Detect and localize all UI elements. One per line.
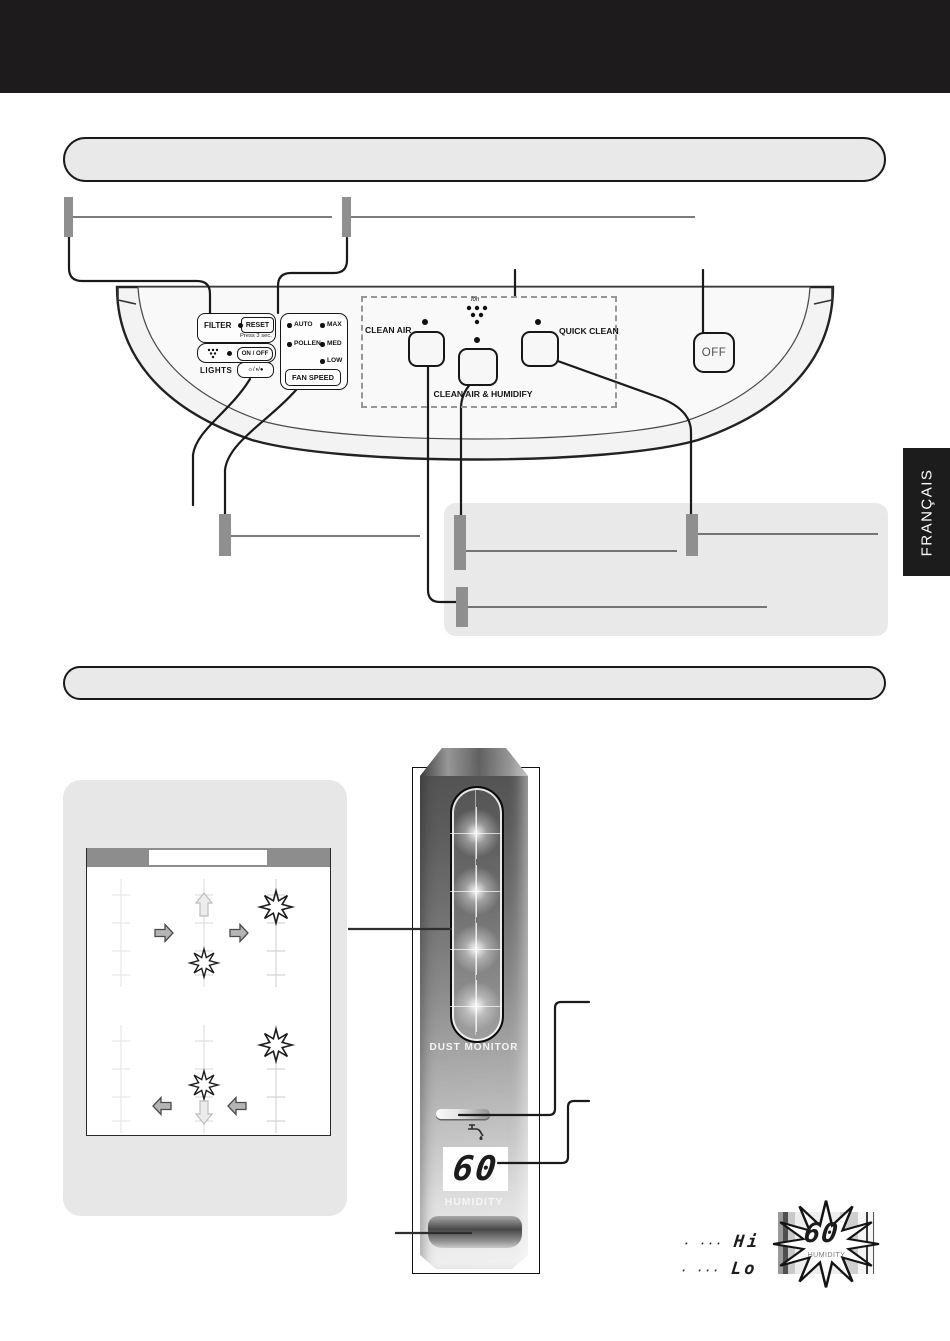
lights-label: LIGHTS <box>200 366 232 375</box>
quick-clean-button <box>521 331 559 367</box>
ion-icon <box>464 304 490 334</box>
reset-button: RESET <box>241 317 274 333</box>
off-button-label: OFF <box>702 347 727 359</box>
water-tap-icon <box>464 1120 488 1146</box>
ion-icon-label: Ion <box>471 297 479 303</box>
marker-filter <box>64 197 73 237</box>
flashing-display-thumbnail: 60 HUMIDITY <box>778 1212 875 1274</box>
ion-onoff-button: ON / OFF <box>237 347 273 361</box>
water-supply-indicator <box>436 1109 490 1119</box>
ion-onoff-label: ON / OFF <box>242 350 269 357</box>
front-panel-bottom-band <box>428 1216 522 1248</box>
leader-fan-button <box>225 390 296 514</box>
language-tab: FRANÇAIS <box>903 448 950 576</box>
dust-monitor-label: DUST MONITOR <box>420 1042 528 1053</box>
fan-indicator-med: MED <box>327 340 342 347</box>
clean-air-button <box>408 331 445 367</box>
manual-page: DUST MONITOR 60 HUMIDITY FRANÇAIS <box>0 0 950 1341</box>
filter-label: FILTER <box>204 321 231 330</box>
pollen-light <box>287 342 292 347</box>
lights-button-glyphs: ☼/◑/● <box>247 367 263 373</box>
humidity-value: 60 <box>451 1149 501 1189</box>
ion-onoff-group: ON / OFF <box>197 343 276 363</box>
lo-dots: · ··· <box>680 1266 721 1277</box>
fan-indicator-low: LOW <box>327 357 342 364</box>
fan-speed-button-label: FAN SPEED <box>292 373 334 382</box>
off-button: OFF <box>693 332 735 373</box>
hi-dots: · ··· <box>683 1239 724 1250</box>
legend-hi-lo: · ··· Hi · ··· Lo <box>679 1230 762 1284</box>
section-header-1 <box>63 137 886 182</box>
dust-light-4 <box>448 978 504 1034</box>
leader-fanspeed <box>278 238 347 313</box>
humidity-display: 60 <box>443 1147 508 1191</box>
legend-lo-row: · ··· Lo <box>679 1257 759 1284</box>
auto-light <box>287 323 292 328</box>
max-light <box>320 323 325 328</box>
leader-filter <box>69 237 210 313</box>
low-light <box>320 359 325 364</box>
quick-clean-light <box>535 319 541 325</box>
fan-indicator-max: MAX <box>327 321 342 328</box>
language-tab-label: FRANÇAIS <box>918 468 935 556</box>
clean-air-label: CLEAN AIR <box>365 325 411 335</box>
dust-light-1 <box>448 805 504 861</box>
marker-fanspeed <box>342 197 351 237</box>
legend-hi-row: · ··· Hi <box>682 1230 762 1257</box>
clean-air-humidify-light <box>474 337 480 343</box>
ion-icon-small <box>206 346 220 360</box>
humidity-label: HUMIDITY <box>420 1196 528 1208</box>
fan-speed-group: AUTO MAX POLLEN MED LOW FAN SPEED <box>280 313 348 390</box>
filter-reset-group: FILTER RESET Press 3 sec. <box>197 313 276 343</box>
lights-button: ☼/◑/● <box>237 362 274 378</box>
callout-box <box>444 503 888 636</box>
ion-indicator-light <box>227 351 232 356</box>
dust-light-2 <box>448 863 504 919</box>
reset-note: Press 3 sec. <box>240 333 272 339</box>
explanation-panel <box>86 848 331 1136</box>
marker-lights <box>219 514 231 556</box>
fan-indicator-pollen: POLLEN <box>294 340 321 347</box>
leader-lights <box>193 379 250 505</box>
lo-value: Lo <box>730 1259 759 1279</box>
dust-light-3 <box>448 921 504 977</box>
fan-speed-button: FAN SPEED <box>285 369 341 386</box>
clean-air-light <box>422 319 428 325</box>
reset-button-label: RESET <box>246 322 269 329</box>
section-header-2 <box>63 666 886 700</box>
clean-air-humidify-button <box>458 348 498 386</box>
explanation-graphic <box>87 867 330 1135</box>
hi-value: Hi <box>733 1232 762 1252</box>
panel-top-bevel <box>420 748 528 776</box>
explanation-panel-title-box <box>149 850 267 865</box>
flash-humidity-label: HUMIDITY <box>778 1252 875 1259</box>
fan-indicator-auto: AUTO <box>294 321 313 328</box>
clean-air-humidify-label: CLEAN AIR & HUMIDIFY <box>408 389 558 399</box>
top-banner <box>0 0 950 93</box>
med-light <box>320 342 325 347</box>
quick-clean-label: QUICK CLEAN <box>559 326 619 336</box>
flash-value: 60 <box>802 1218 840 1249</box>
